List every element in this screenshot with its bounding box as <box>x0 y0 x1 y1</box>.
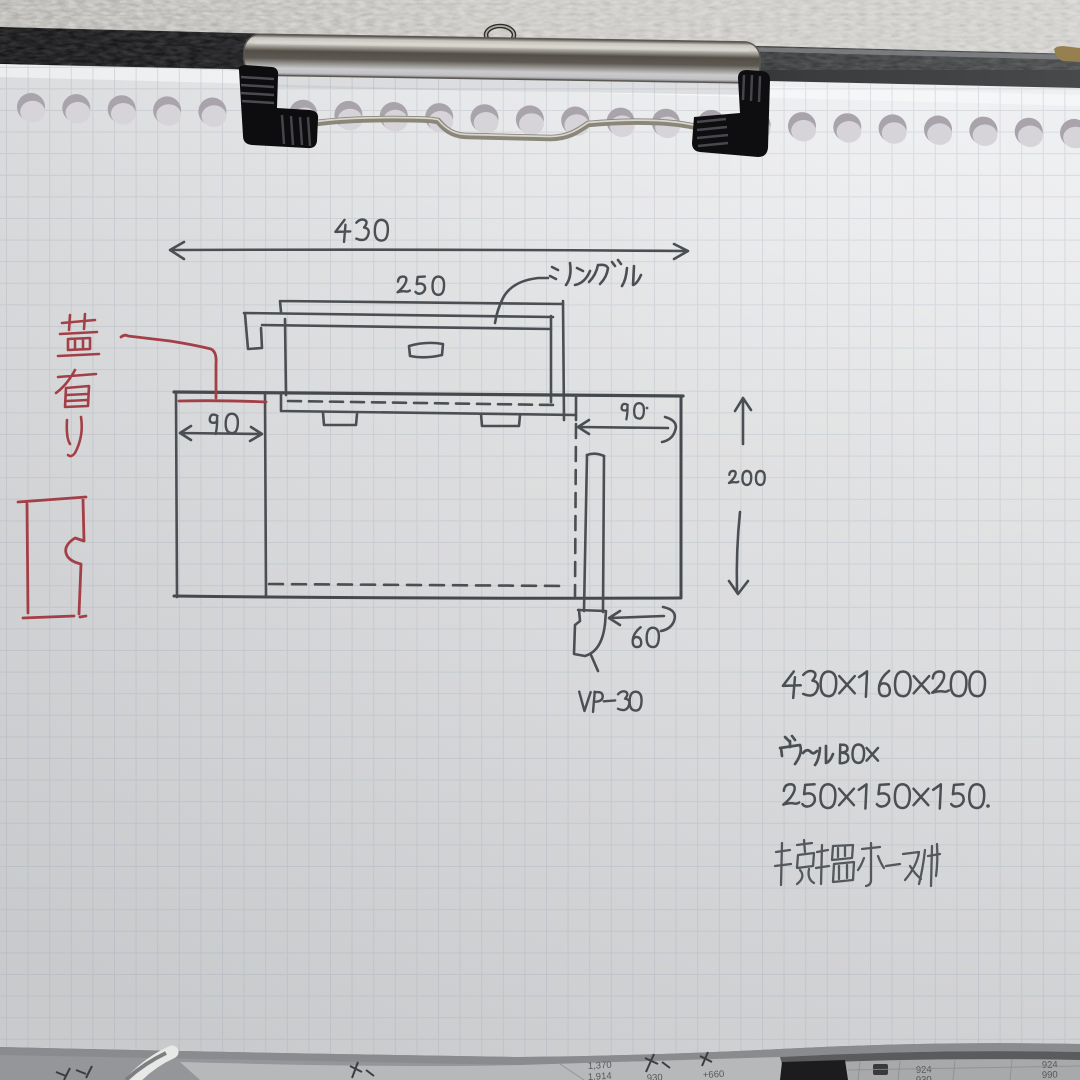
svg-text:1,914: 1,914 <box>588 1071 612 1080</box>
svg-text:990: 990 <box>1042 1069 1058 1080</box>
svg-text:+660: +660 <box>703 1069 725 1080</box>
svg-text:930: 930 <box>916 1074 932 1080</box>
svg-text:930: 930 <box>647 1072 663 1080</box>
